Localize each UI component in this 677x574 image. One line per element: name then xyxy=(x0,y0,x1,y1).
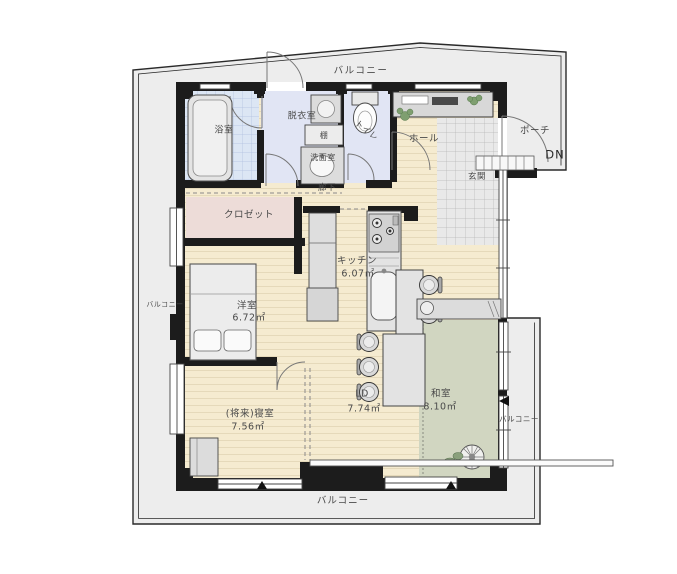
label-balcony-left: バルコニー xyxy=(146,302,183,309)
label-living-dining-area: 7.74㎡ xyxy=(347,404,380,414)
japanese-room-counter xyxy=(417,299,501,319)
floorplan: バルコニー 浴室 脱衣室 棚 洗面室 トイレ ホール ポーチ DN 玄関 廊下 … xyxy=(0,0,677,574)
label-western-room-area: 6.72㎡ xyxy=(232,313,265,323)
porch-steps xyxy=(476,156,534,170)
label-kitchen: キッチン xyxy=(337,256,377,266)
label-washroom: 洗面室 xyxy=(310,154,336,162)
label-japanese-room: 和室 xyxy=(431,389,451,399)
label-corridor: 廊下 xyxy=(318,184,336,193)
refrigerator xyxy=(309,213,336,289)
bathtub xyxy=(188,95,232,181)
label-stair-down: DN xyxy=(545,149,564,161)
label-shelf: 棚 xyxy=(320,132,329,140)
label-kitchen-area: 6.07㎡ xyxy=(341,269,374,279)
label-western-room: 洋室 xyxy=(237,301,257,311)
label-future-bedroom-area: 7.56㎡ xyxy=(231,422,264,432)
dining-table xyxy=(383,334,425,406)
section-cut-bar xyxy=(310,460,613,466)
balcony-door-opening xyxy=(266,82,306,91)
label-balcony-top: バルコニー xyxy=(334,66,389,76)
floorplan-drawing xyxy=(0,0,677,574)
label-living-dining: LD xyxy=(355,389,369,399)
kitchen-sink xyxy=(371,272,397,320)
label-porch: ポーチ xyxy=(520,126,550,136)
bedroom-cabinet xyxy=(190,438,218,476)
label-japanese-room-area: 8.10㎡ xyxy=(423,402,456,412)
label-balcony-bottom: バルコニー xyxy=(317,496,369,506)
label-closet: クロゼット xyxy=(224,210,274,220)
label-balcony-right: バルコニー xyxy=(499,415,539,423)
label-hall: ホール xyxy=(409,134,439,144)
label-entrance: 玄関 xyxy=(468,173,486,182)
label-future-bedroom: (将来)寝室 xyxy=(226,409,274,419)
kitchen-cabinet xyxy=(307,288,338,321)
label-dressing-room: 脱衣室 xyxy=(288,113,317,122)
label-bathroom: 浴室 xyxy=(214,127,233,136)
